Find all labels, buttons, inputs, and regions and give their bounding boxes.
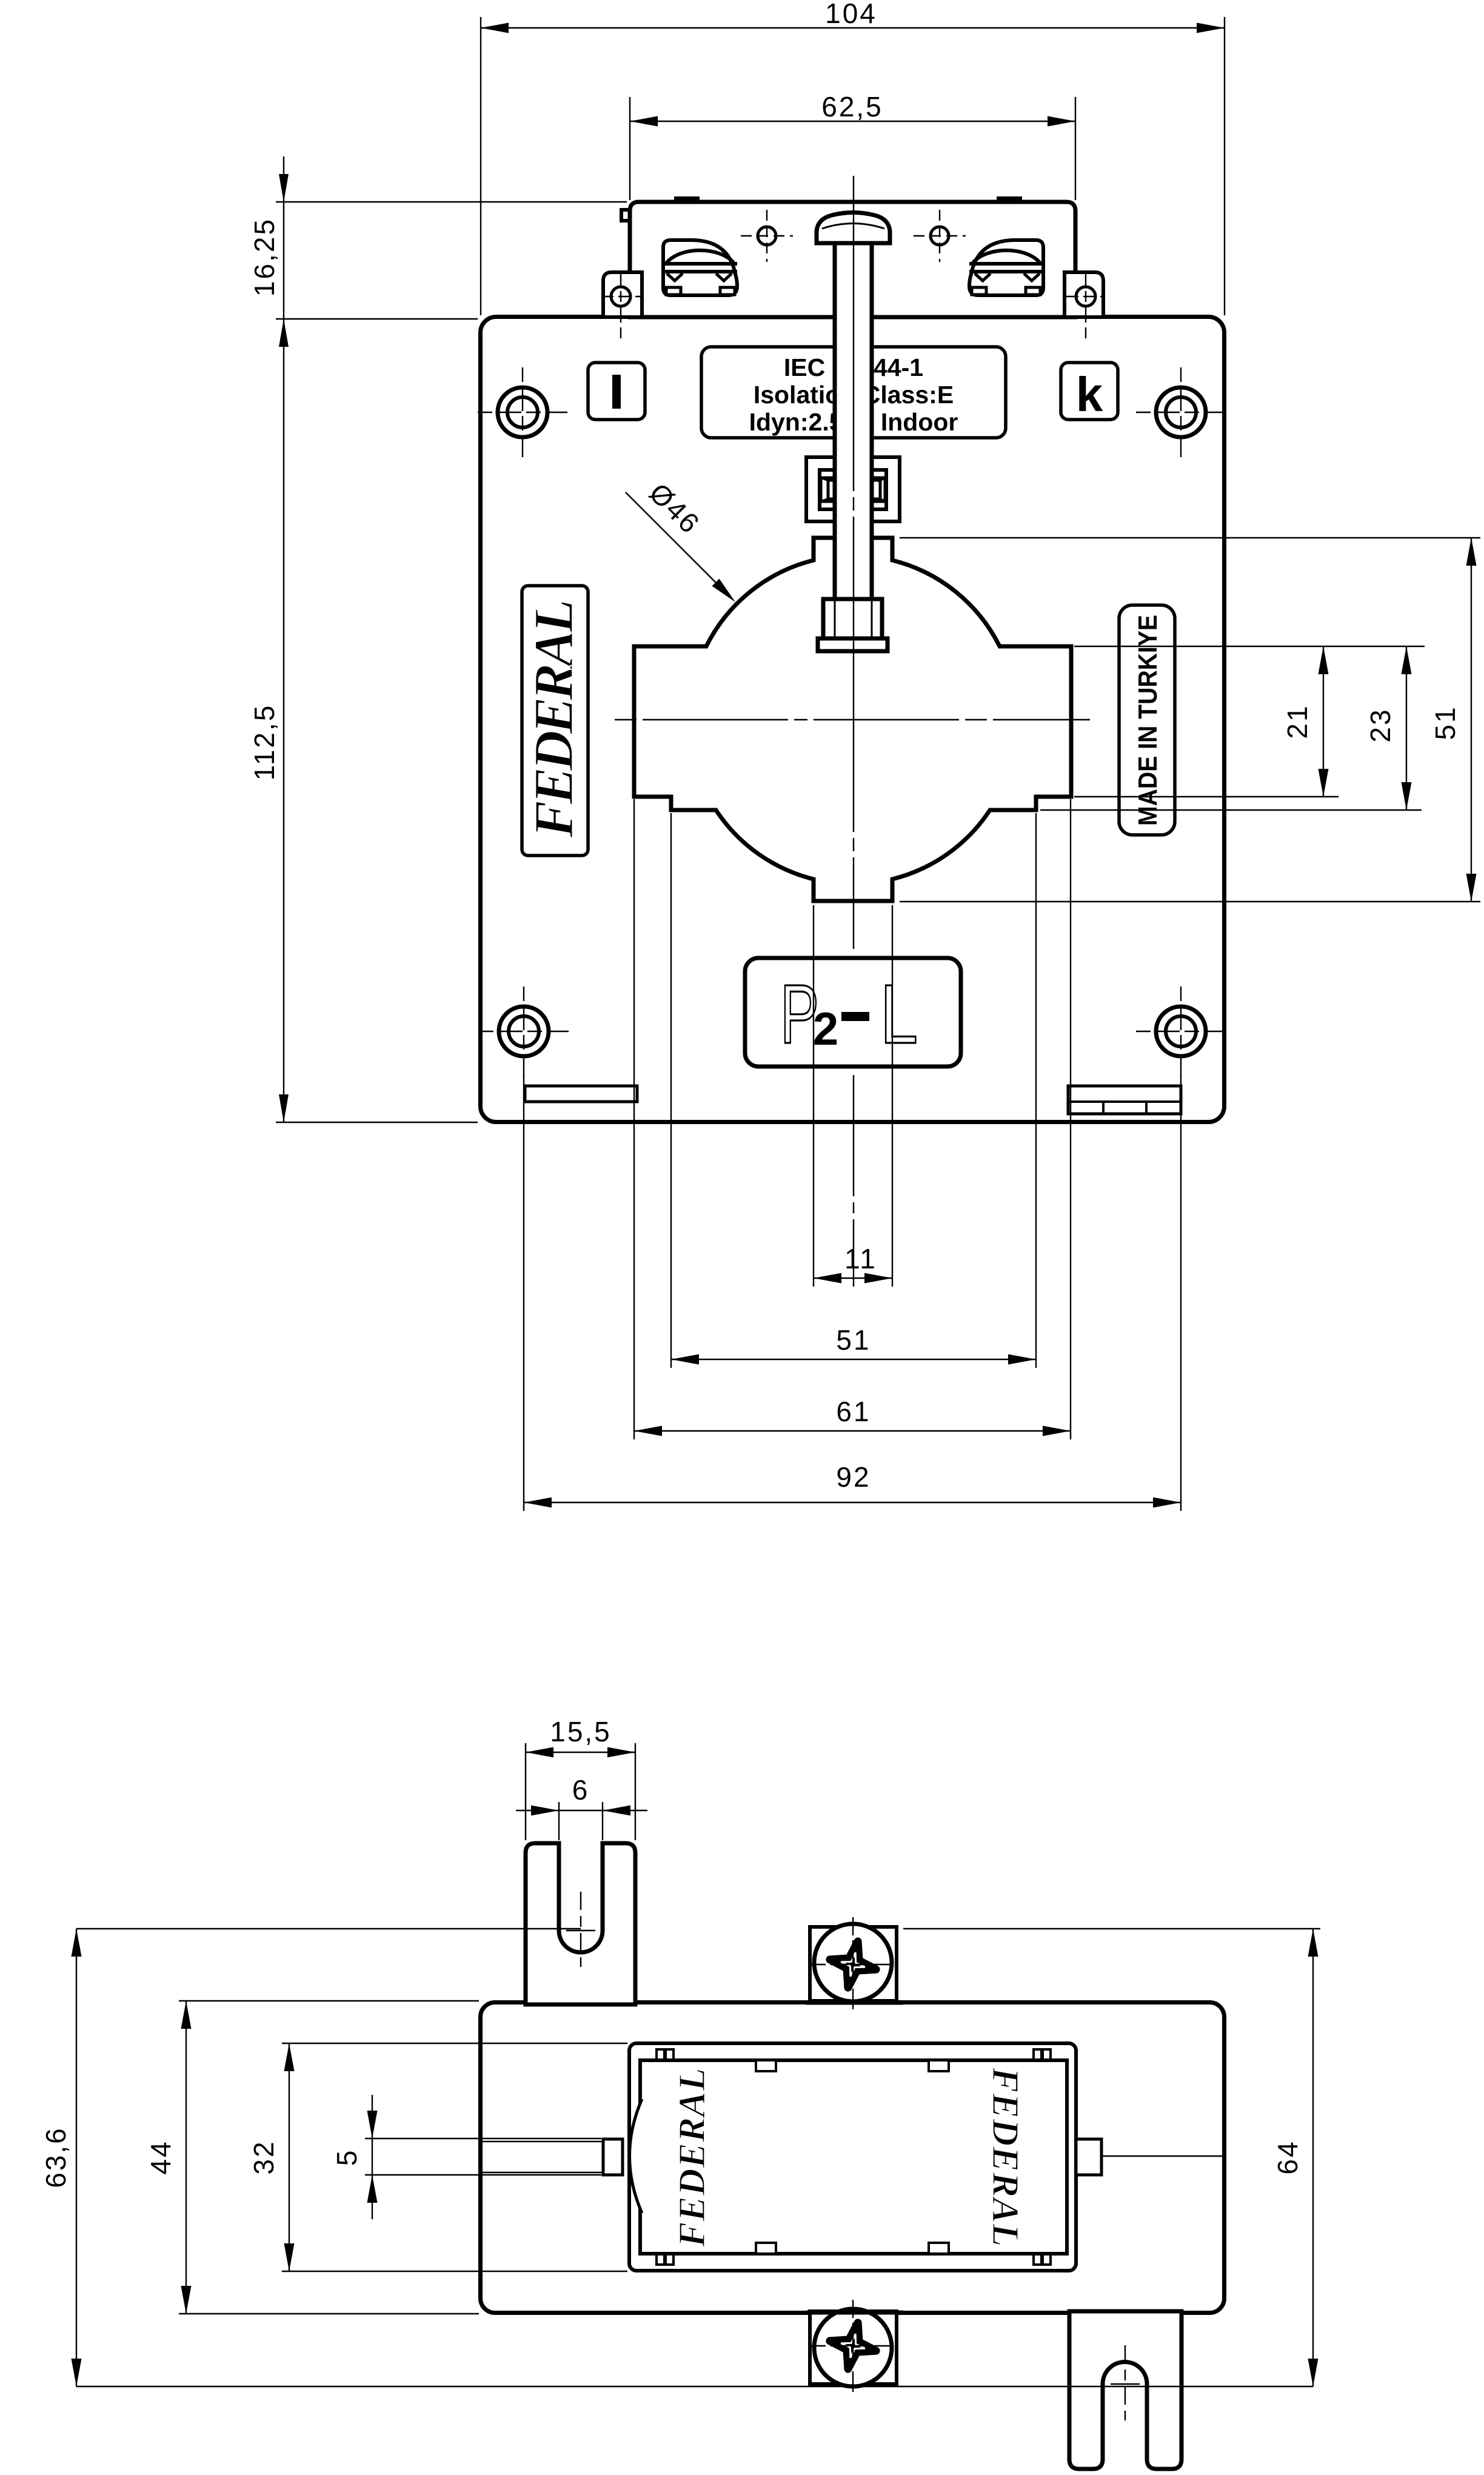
svg-text:6: 6 xyxy=(572,1774,590,1806)
svg-text:23: 23 xyxy=(1365,708,1396,742)
svg-text:FEDERAL: FEDERAL xyxy=(672,2068,713,2248)
svg-text:FEDERAL: FEDERAL xyxy=(523,601,584,838)
svg-text:51: 51 xyxy=(1429,705,1461,740)
svg-text:5: 5 xyxy=(331,2149,363,2166)
svg-text:16,25: 16,25 xyxy=(249,218,280,296)
svg-text:62,5: 62,5 xyxy=(821,91,883,122)
svg-text:32: 32 xyxy=(248,2140,279,2174)
svg-text:15,5: 15,5 xyxy=(550,1716,612,1747)
svg-text:112,5: 112,5 xyxy=(249,704,280,781)
svg-text:51: 51 xyxy=(836,1324,871,1356)
svg-text:61: 61 xyxy=(836,1396,871,1427)
svg-text:64: 64 xyxy=(1272,2140,1303,2174)
svg-text:21: 21 xyxy=(1282,704,1313,738)
svg-text:44: 44 xyxy=(145,2140,176,2174)
svg-text:k: k xyxy=(1076,367,1103,421)
svg-text:104: 104 xyxy=(825,0,877,29)
svg-text:92: 92 xyxy=(836,1461,871,1493)
svg-text:63,6: 63,6 xyxy=(40,2126,72,2188)
svg-text:L: L xyxy=(880,968,918,1061)
svg-text:11: 11 xyxy=(844,1243,877,1274)
svg-text:2: 2 xyxy=(813,1003,838,1055)
svg-text:FEDERAL: FEDERAL xyxy=(984,2067,1026,2247)
